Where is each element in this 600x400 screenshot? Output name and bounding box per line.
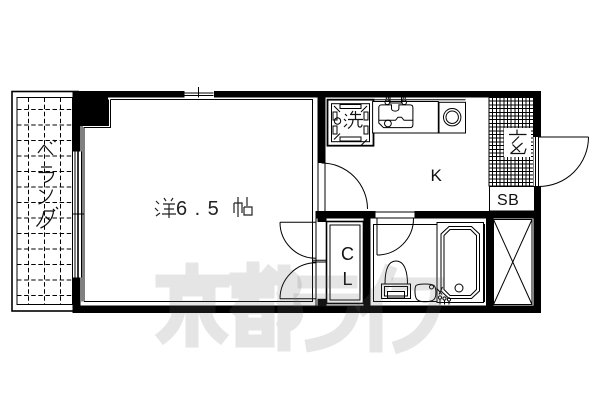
svg-text:K: K xyxy=(431,166,443,185)
svg-text:6.5: 6.5 xyxy=(176,198,226,220)
svg-text:SB: SB xyxy=(497,192,519,209)
svg-text:C: C xyxy=(341,244,354,264)
